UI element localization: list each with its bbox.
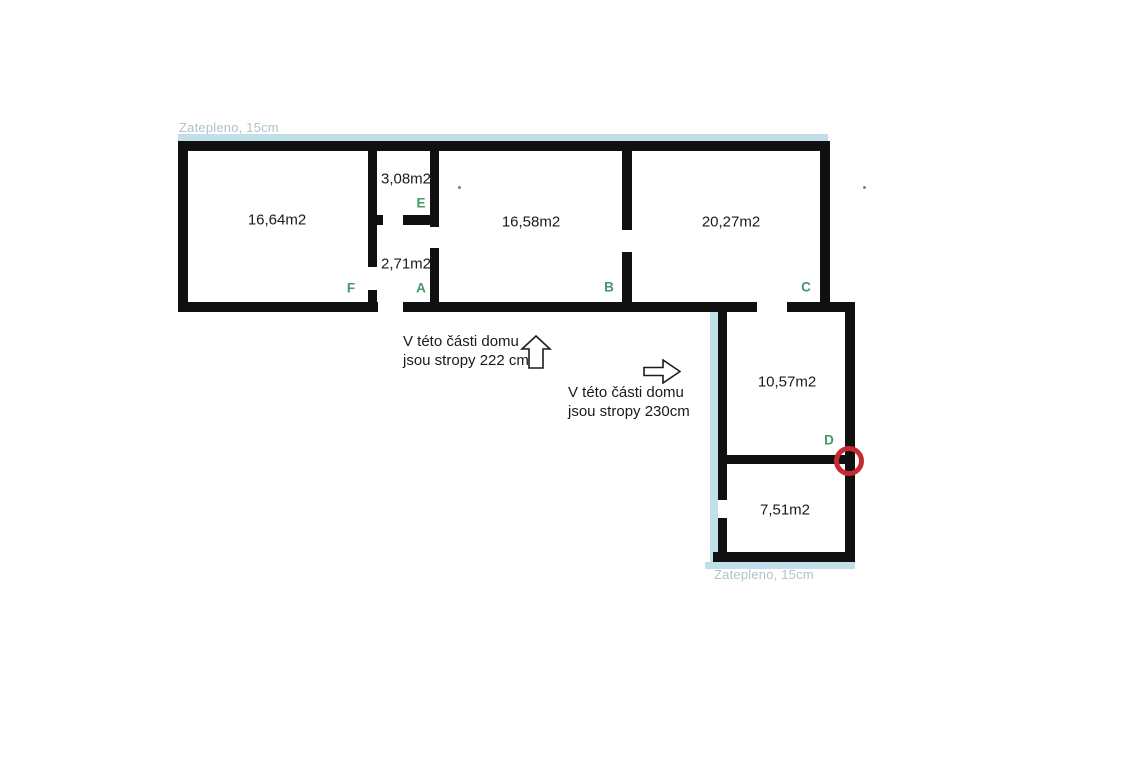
lower-wing-left-wall	[718, 312, 727, 500]
ceiling-note-230: V této části domu jsou stropy 230cm	[568, 383, 690, 421]
door-label-e: E	[416, 196, 425, 211]
door-label-c: C	[801, 280, 811, 295]
insulation-label-top: Zatepleno, 15cm	[179, 120, 279, 135]
right-arrow-icon	[643, 359, 681, 384]
door-marker-circle	[834, 446, 864, 476]
room-label-20-27: 20,27m2	[702, 214, 760, 231]
door-label-b: B	[604, 280, 614, 295]
door-b-wall-lower	[622, 252, 632, 302]
corridor-left-wall-stub	[368, 290, 377, 302]
outer-wall-left	[178, 141, 188, 312]
room-label-16-58: 16,58m2	[502, 214, 560, 231]
door-label-f: F	[347, 281, 355, 296]
door-d-wall	[727, 455, 845, 464]
room-label-10-57: 10,57m2	[758, 374, 816, 391]
insulation-label-bottom: Zatepleno, 15cm	[714, 567, 814, 582]
door-e-wall-left	[368, 215, 383, 225]
pen-dot	[458, 186, 461, 189]
room-label-7-51: 7,51m2	[760, 502, 810, 519]
floor-plan-canvas: Zatepleno, 15cm Zatepleno, 15cm 16,64m2 …	[0, 0, 1140, 774]
door-b-wall-upper	[622, 151, 632, 230]
ceiling-note-222-line2: jsou stropy 222 cm	[403, 351, 529, 370]
lower-wing-bottom-wall	[713, 552, 855, 562]
room-label-2-71: 2,71m2	[381, 256, 431, 273]
ceiling-note-222: V této části domu jsou stropy 222 cm	[403, 332, 529, 370]
outer-wall-bottom-seg1	[178, 302, 378, 312]
corridor-right-wall-upper	[430, 151, 439, 227]
outer-wall-top	[178, 141, 830, 151]
up-arrow-icon	[520, 335, 552, 369]
room-label-3-08: 3,08m2	[381, 171, 431, 188]
insulation-bar-top	[178, 134, 828, 141]
corridor-left-wall	[368, 151, 377, 267]
lower-wing-right-wall	[845, 303, 855, 562]
corridor-right-wall-lower	[430, 248, 439, 302]
door-label-a: A	[416, 281, 426, 296]
ceiling-note-222-line1: V této části domu	[403, 332, 529, 351]
door-label-d: D	[824, 433, 834, 448]
room-label-16-64: 16,64m2	[248, 212, 306, 229]
outer-wall-bottom-seg2	[403, 302, 757, 312]
ceiling-note-230-line1: V této části domu	[568, 383, 690, 402]
pen-dot	[863, 186, 866, 189]
ceiling-note-230-line2: jsou stropy 230cm	[568, 402, 690, 421]
lower-wing-left-wall-stub	[718, 518, 727, 552]
insulation-bar-left-lower	[710, 308, 718, 562]
outer-wall-right-upper	[820, 141, 830, 312]
